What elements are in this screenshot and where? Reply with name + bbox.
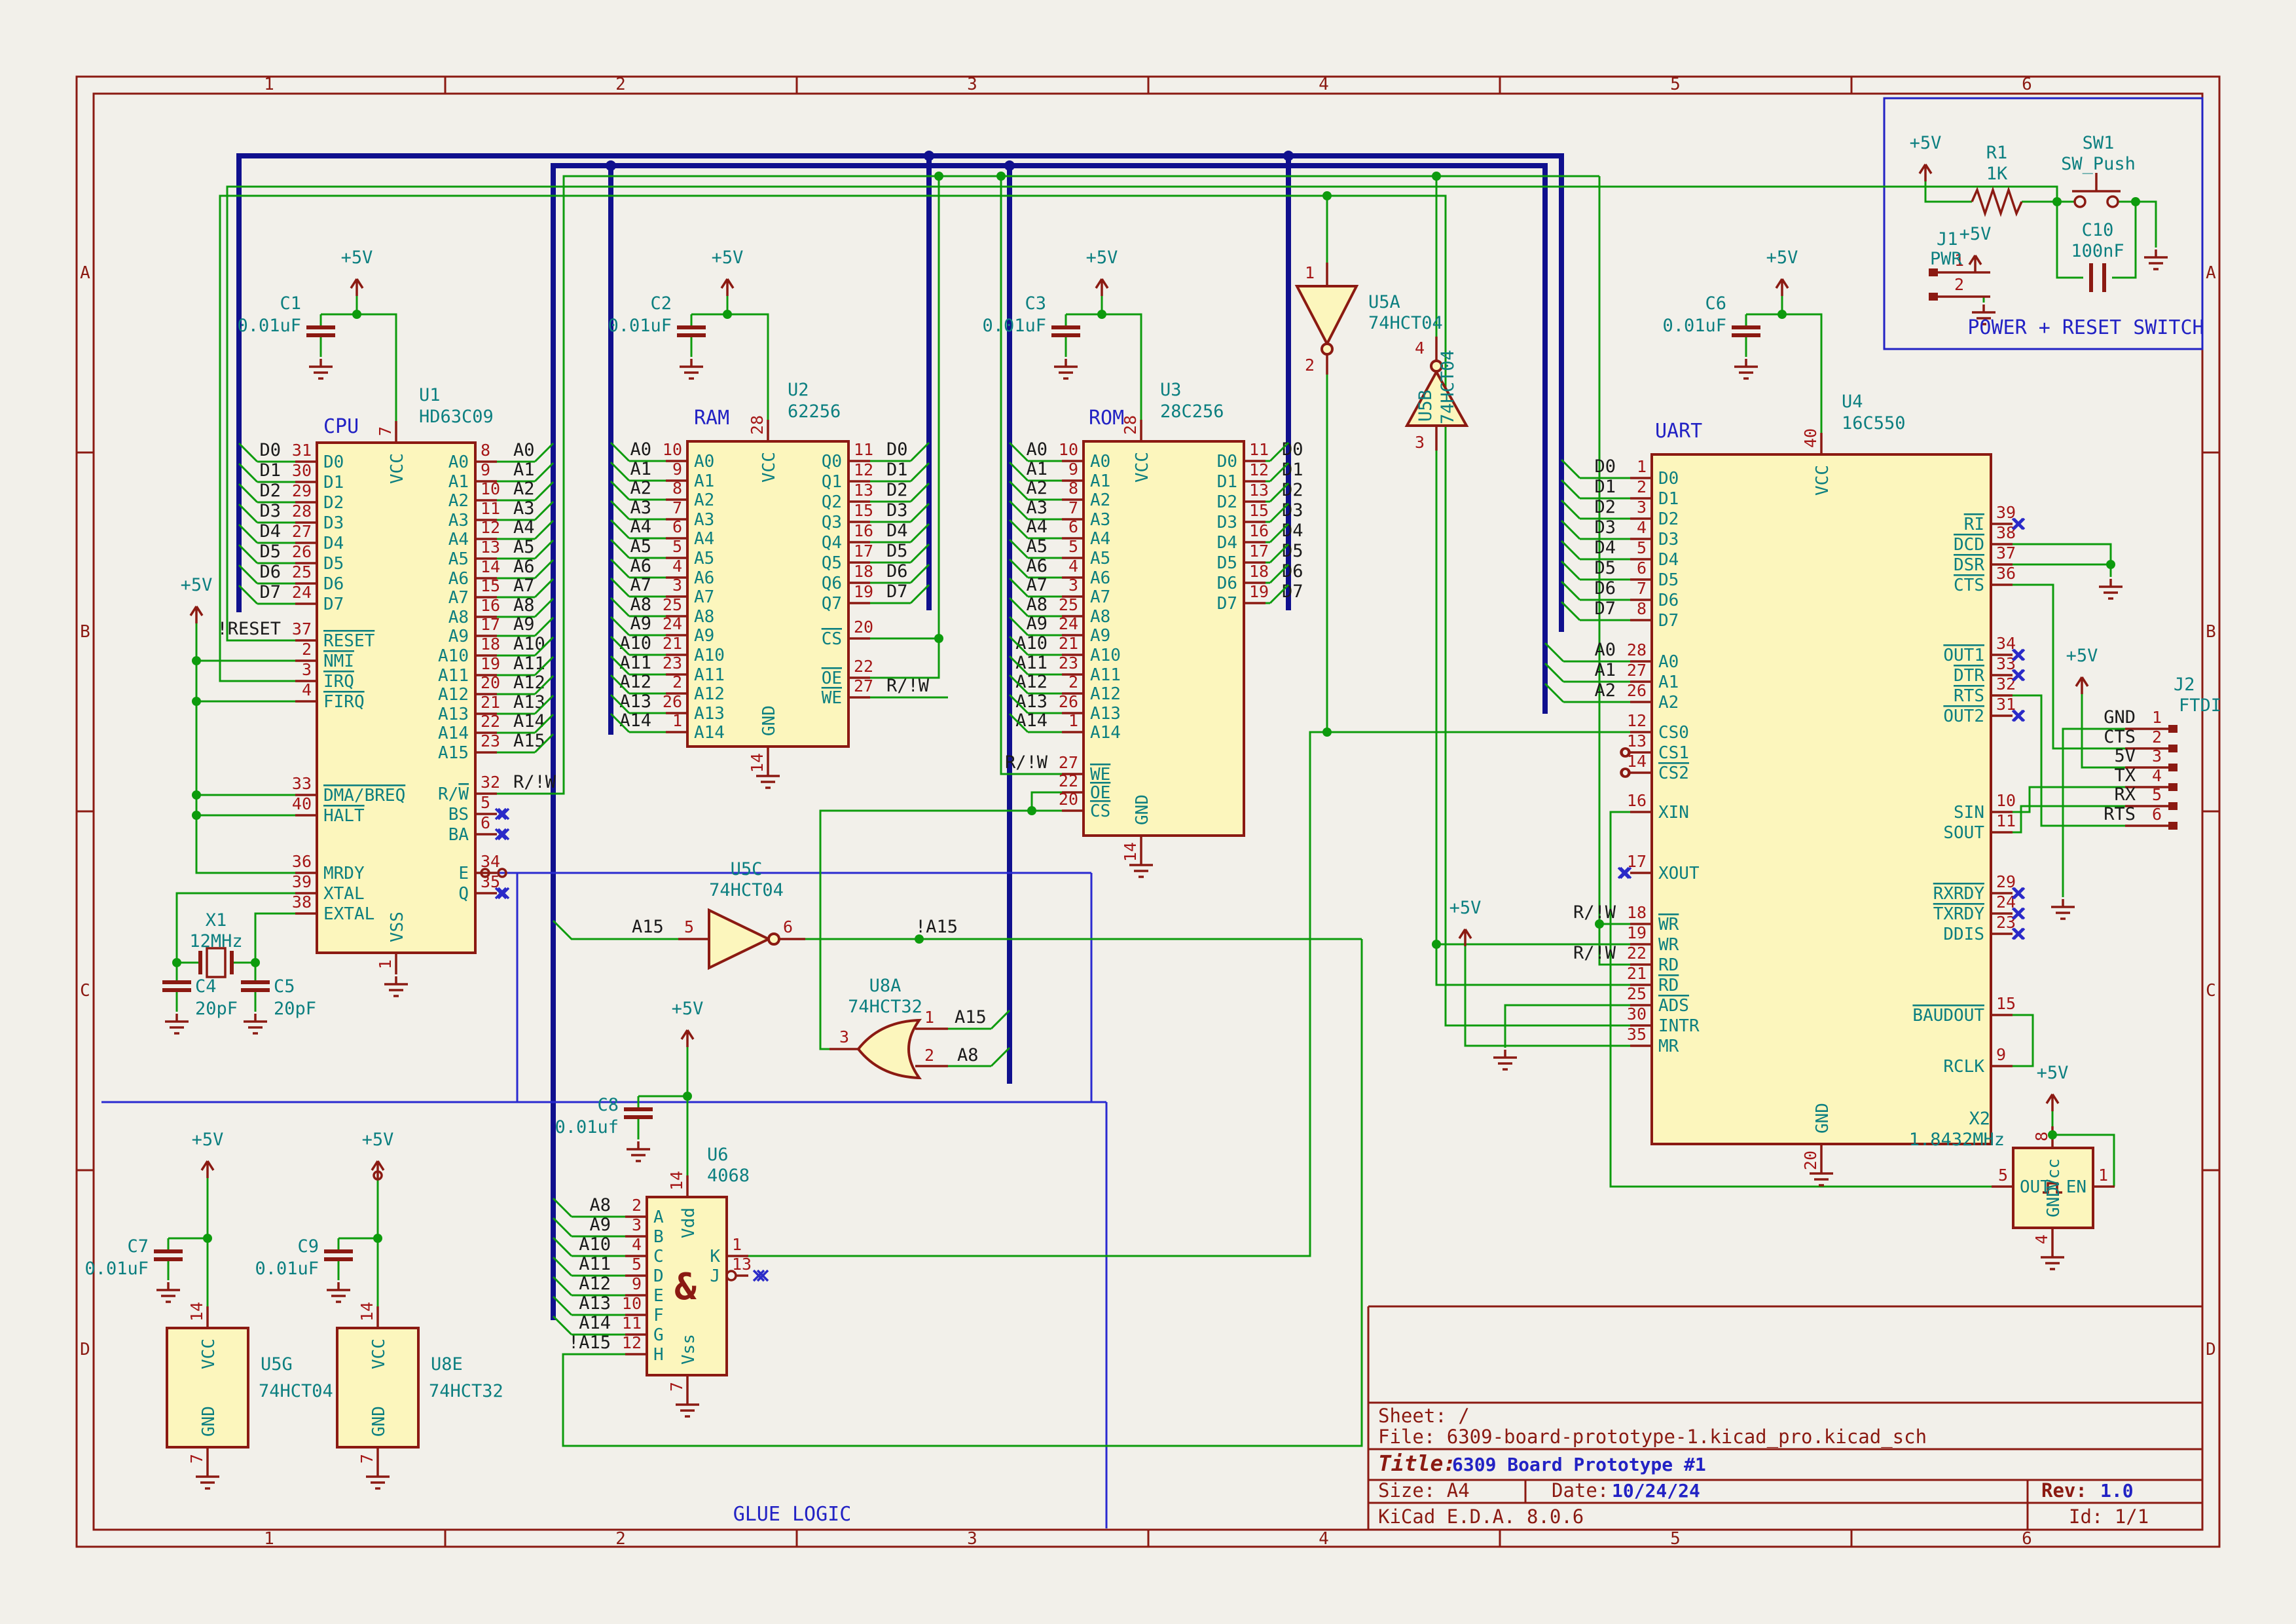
junction-dot [373,1234,382,1243]
text-ics.1.L.9.0: 24 [663,614,682,633]
text-label: D5 [1217,553,1237,573]
text-parts.caps.3.ref: C6 [1705,293,1726,314]
text-label: A3 [694,510,714,530]
date-value: 10/24/24 [1612,1480,1700,1502]
text-power_net: +5V [1449,898,1482,918]
text-label: A8 [694,607,714,627]
text-label: A15 [438,743,469,763]
text-ics.3.B.1: GND [1813,1103,1832,1134]
text-ics.0.R.8.4: A8 [513,595,535,616]
text-ics.3.L.14.0: 16 [1627,791,1647,810]
text-ics.2.L.10.0: 21 [1059,634,1078,653]
text-ics.1.R.10.0: 27 [854,676,873,695]
text-parts.c10.ref: C10 [2082,220,2114,240]
text-ics.0.R.5.4: A5 [513,537,535,557]
frame-row-label: A [2206,263,2216,283]
text-ics.0.R.2.4: A2 [513,479,535,499]
text-ics.4.ref: U6 [707,1145,729,1165]
text-gates.u5a.n1: 1 [1305,263,1315,282]
text-ics.9.0.R.0: 17 [481,615,500,634]
text-ics.2.val: 28C256 [1160,401,1224,422]
text-ics.14.0.L.0: 36 [292,852,312,871]
text-ics.1.R.7.4: D7 [886,581,908,602]
text-ics.0.R.16.4: R/!W [513,772,556,792]
text-ics.1.R.9.0: 22 [854,657,873,676]
text-gates.u5a.ref: U5A [1368,292,1400,312]
text-parts.j2.pins.3.1: TX [2114,766,2136,786]
bus-entry-diag [535,482,553,500]
text-sections.1.t: GLUE LOGIC [733,1503,852,1526]
switch-contact [2075,196,2085,207]
text-ics.4.L.5.0: 10 [622,1294,642,1313]
text-ics.2.R.7.4: D7 [1282,581,1303,602]
text-label: XTAL [323,884,365,904]
kicad-schematic-sheet: 112233445566AABBCCDD Sheet: / File: 6309… [0,0,2296,1624]
text-ics.2.L.7.0: 3 [1068,576,1078,595]
text-ics.4.L.7.4: !A15 [568,1333,611,1353]
text-ics.19.0.R.0: 34 [481,852,500,871]
text-ics.0.ref: U1 [419,385,441,405]
text-ics.0.L.4.4: D4 [259,521,281,542]
frame-col-label: 2 [615,75,626,94]
text-ics.1.T.1: VCC [759,452,779,483]
text-label: A6 [448,569,469,589]
text-label: D [653,1266,664,1286]
text-ics.3.R.1.0: 38 [1996,523,2016,542]
text-ics.2.R.3.0: 15 [1249,501,1269,520]
text-ics.3.L.10.0: 26 [1627,681,1647,700]
text-label: E [653,1286,664,1306]
text-ics.2.L.15.0: 27 [1059,753,1078,772]
sheet-label: Sheet: / [1378,1405,1470,1427]
text-ics.0.B.1: VSS [388,912,407,942]
bus-entry-diag [1010,481,1028,500]
text-ics.3.L.6.0: 7 [1637,579,1647,598]
text-label: A12 [694,684,725,704]
text-parts.caps.1.val: 0.01uF [608,316,672,336]
text-ics.3.L.7.4: D7 [1594,599,1616,619]
wire [1782,296,1821,435]
text-ics.0.T.1: VCC [388,453,407,484]
text-ics.4.T.0: 14 [667,1171,686,1190]
power-flag-arrow [682,1030,693,1047]
text-ics.2.R.4.0: 16 [1249,521,1269,540]
text-label: A [653,1208,664,1227]
bus-entry-diag [611,578,629,597]
text-ics.4.L.2.0: 4 [632,1235,642,1254]
text-parts.caps.2.val: 0.01uF [982,316,1046,336]
bus-entry-diag [239,484,257,502]
text-ics.3.L.4.0: 5 [1637,538,1647,557]
text-ics.1.L.5.0: 5 [672,537,682,556]
junction-dot [1777,310,1787,319]
text-ics.1.0.L.0: 30 [292,461,312,480]
text-label: A7 [1090,587,1110,607]
text-ics.5.T.0: 14 [187,1302,206,1321]
frame-col-label: 1 [264,1529,274,1549]
text-label: D6 [323,574,344,594]
text-parts.j2.pins.1.1: CTS [2104,727,2136,747]
text-ics.2.R.6.4: D6 [1282,561,1303,581]
frame-row-label: C [2206,981,2216,1001]
frame-col-label: 4 [1319,1529,1329,1549]
text-parts.j2.pins.3.0: 4 [2152,766,2162,785]
text-ics.2.T.0: 28 [1121,415,1140,435]
junction-dot [1432,172,1441,181]
text-ics.3.L.22.0: 35 [1627,1025,1647,1044]
text-parts.j1.pins.1: 2 [1954,275,1964,294]
text-ics.7.0.L.0: 24 [292,583,312,602]
text-ics.1.L.11.0: 23 [663,654,682,673]
text-power_net: +5V [2066,646,2098,666]
bus-entry-diag [1561,480,1580,498]
text-parts.caps.1.ref: C2 [650,293,672,314]
power-flag-arrow [1096,279,1108,296]
text-parts.j2.pins.2.0: 3 [2152,747,2162,766]
bus-entry-diag [911,564,929,583]
wire [177,893,295,963]
text-ics.2.L.1.0: 9 [1068,460,1078,479]
text-label: D5 [1658,570,1679,590]
junction-dot [172,958,181,967]
power-flag-arrow [721,279,733,296]
text-ics.2.L.12.0: 2 [1068,673,1078,692]
text-ics.3.R.9.0: 11 [1996,811,2016,830]
text-ics.2.R.5.4: D5 [1282,541,1303,561]
gate-u5c-bubble [769,934,779,944]
bus-entry-diag [1010,520,1028,538]
text-label: A10 [438,646,469,666]
text-label: SOUT [1943,823,1984,843]
text-ics.2.L.2.0: 8 [1068,479,1078,498]
text-gates.u5b.ref: U5B [1415,390,1436,422]
text-label: A11 [438,666,469,686]
text-ics.3.L.9.0: 27 [1627,661,1647,680]
text-ics.11.0.R.0: 19 [481,654,500,673]
text-ics.14.0.R.0: 22 [481,712,500,731]
text-ics.3.L.6.4: D6 [1594,578,1616,599]
text-ics.4.L.1.0: 3 [632,1215,642,1234]
bus-entry-diag [1545,643,1563,661]
text-ics.13.0.R.0: 21 [481,693,500,712]
frame-col-label: 3 [967,75,977,94]
power-flag-arrow [191,606,202,623]
bus-entry-diag [535,618,553,636]
text-label: WE [822,688,842,708]
text-label: MR [1658,1037,1679,1056]
text-parts.caps.4.ref: C4 [195,976,217,997]
text-ics.2.R.2.0: 13 [1249,481,1269,500]
text-ics.4.R.1.0: 13 [732,1255,752,1274]
text-ics.2.L.5.4: A5 [1026,536,1048,557]
text-ics.0.L.8.4: !RESET [217,619,281,639]
text-parts.j1.ref: J1 [1937,229,1958,249]
text-label: D3 [1217,513,1237,532]
wire [2013,544,2111,577]
text-label: WR [1658,935,1679,955]
text-ics.1.R.0.0: 11 [854,440,873,459]
text-ics.8.0.R.0: 16 [481,596,500,615]
text-ics.4.L.0.0: 2 [632,1196,642,1215]
bus-entry-diag [1561,541,1580,559]
bus-entry-diag [1010,617,1028,635]
frame-row-label: A [80,263,90,283]
gnd-symbol [627,1141,650,1161]
text-ics.2.L.2.4: A2 [1026,478,1048,498]
text-ics.3.R.2.0: 37 [1996,544,2016,563]
text-ics.1.R.1.0: 12 [854,460,873,479]
text-label: XIN [1658,803,1689,822]
text-ics.1.ref: U2 [788,380,809,400]
text-ics.0.R.6.4: A6 [513,557,535,577]
bus-entry-diag [1010,578,1028,597]
text-gates.u5c.val: 74HCT04 [709,880,784,900]
text-label: D0 [1658,469,1679,489]
bus-entry-diag [611,598,629,616]
text-ics.2.L.3.0: 7 [1068,498,1078,517]
text-parts.x1.ref: X1 [206,910,227,931]
text-parts.r1.val: 1K [1986,164,2008,184]
text-ics.3.val: 16C550 [1842,413,1906,434]
junction-dot [1322,728,1332,737]
text-parts.caps.6.ref: C7 [127,1236,149,1257]
gnd-symbol [2051,899,2075,919]
gnd-symbol [1493,1050,1517,1069]
text-ics.4.B.1: Vss [679,1334,699,1365]
text-label: D7 [1658,611,1679,631]
text-label: D1 [1217,472,1237,492]
text-ics.1.R.5.4: D5 [886,541,908,561]
text-label: A5 [694,549,714,568]
text-ics.3.L.16.0: 18 [1627,903,1647,922]
text-ics.1.L.0.0: 10 [663,440,682,459]
bus-entry-diag [553,1218,572,1236]
text-ics.3.0.R.0: 11 [481,499,500,518]
text-ics.5.B.1: GND [199,1406,219,1437]
text-ics.2.0.R.0: 10 [481,479,500,498]
text-label: CS [822,629,842,649]
bus-entry-diag [553,1316,572,1335]
no-connect-icon [1620,868,1631,878]
text-ics.2.L.7.4: A7 [1026,575,1048,595]
j2-pin-pad [2168,783,2178,791]
bus-entry-diag [911,504,929,522]
text-power_net: +5V [341,248,373,268]
text-ics.3.L.19.0: 21 [1627,964,1647,983]
text-ics.4.R.0.0: 1 [732,1235,742,1254]
text-ics.1.L.8.4: A8 [630,595,651,615]
text-label: A3 [448,511,469,530]
junction-dot [2048,1130,2057,1139]
text-ics.7.B.0: 4 [2032,1234,2051,1244]
text-ics.3.L.4.4: D4 [1594,538,1616,558]
title-block: Sheet: / File: 6309-board-prototype-1.ki… [1368,1306,2202,1530]
text-gates.u5b.n3: 3 [1415,433,1425,452]
text-parts.caps.3.val: 0.01uF [1662,316,1726,336]
power-flag-arrow [2076,677,2088,694]
text-ics.1.L.1.4: A1 [630,459,651,479]
switch-contact [2107,196,2118,207]
text-parts.j2.val: FTDI [2179,695,2221,716]
text-parts.j2.pins.2.1: 5V [2114,746,2136,766]
bus-entry-diag [611,540,629,558]
text-ics.3.R.6.0: 32 [1996,674,2016,693]
gnd-symbol [165,1014,189,1033]
ic-u4-body [1652,454,1991,1144]
gnd-symbol [2099,579,2123,599]
text-ics.18.0.R.0: 6 [481,813,490,832]
text-ics.3.0.L.0: 28 [292,502,312,521]
bus-entry-diag [535,579,553,597]
text-ics.3.L.18.4: R/!W [1573,943,1616,963]
j1-pin-pad [1929,268,1938,276]
text-ics.3.R.8.0: 10 [1996,791,2016,810]
text-ics.3.L.7.0: 8 [1637,599,1647,618]
bus-entry-diag [239,504,257,523]
bus-entry-diag [535,521,553,539]
bus-junction-dot [924,151,934,161]
text-parts.caps.6.val: 0.01uF [84,1259,149,1279]
text-ics.6.B.1: GND [369,1406,389,1437]
text-label: D2 [323,493,344,513]
text-ics.2.L.11.0: 23 [1059,654,1078,673]
text-label: SIN [1954,803,1984,822]
text-parts.c10.val: 100nF [2071,241,2124,261]
junction-dot [192,656,201,665]
text-ics.1.R.3.4: D3 [886,500,908,521]
text-gates.u5b.n4: 4 [1415,339,1425,358]
junction-dot [251,958,260,967]
schematic-content: U1HD63C09CPU7VCC1VSS31D0D030D1D129D2D228… [84,133,2221,1528]
text-label: IRQ [323,672,354,692]
text-label: EN [2066,1177,2086,1197]
text-ics.1.L.7.0: 3 [672,576,682,595]
text-label: RXRDY [1933,884,1985,904]
size-label: Size: A4 [1378,1479,1470,1502]
frame-row-label: D [2206,1340,2216,1359]
text-power_net: +5V [1766,248,1798,268]
text-ics.3.L.2.4: D2 [1594,497,1616,517]
text-ics.1.L.9.4: A9 [630,614,651,634]
junction-dot [192,790,201,800]
text-ics.5.val: 74HCT04 [259,1381,333,1401]
text-ics.2.L.8.4: A8 [1026,595,1048,615]
text-ics.1.L.2.4: A2 [630,478,651,498]
bus-entry-diag [239,443,257,462]
text-ics.2.R.0.0: 11 [1249,440,1269,459]
text-parts.caps.5.ref: C5 [274,976,295,997]
junction-dot [2052,197,2062,206]
text-parts.j2.pins.4.0: 5 [2152,785,2162,804]
text-label: B [653,1227,664,1247]
text-ics.6.val: 74HCT32 [429,1381,503,1401]
bus-entry-diag [535,463,553,481]
app-version: KiCad E.D.A. 8.0.6 [1378,1505,1584,1528]
junction-dot [1595,919,1604,929]
text-ics.1.L.10.0: 21 [663,634,682,653]
bus-entry-diag [911,524,929,542]
text-ics.2.L.9.4: A9 [1026,614,1048,634]
text-ics.1.B.0: 14 [748,753,767,773]
bus-junction-dot [1004,160,1015,171]
bus-entry-diag [1010,598,1028,616]
text-parts.caps.7.ref: C9 [297,1236,319,1257]
wire [357,296,396,423]
text-ics.6.B.0: 7 [357,1454,376,1464]
text-ics.4.L.6.4: A14 [579,1313,611,1333]
text-ics.5.0.L.0: 26 [292,542,312,561]
text-ics.2.R.5.0: 17 [1249,542,1269,561]
gate-u5a-bubble [1322,344,1332,354]
junction-dot [1432,940,1441,949]
bus-entry-diag [611,520,629,538]
text-ics.1.L.3.0: 7 [672,498,682,517]
text-ics.4.L.4.4: A12 [579,1274,611,1294]
text-ics.2.L.5.0: 5 [1068,537,1078,556]
text-free_labels.0.t: !A15 [915,917,958,937]
text-label: A1 [1658,673,1679,692]
power-flag-arrow [2047,1094,2058,1111]
text-ics.2.L.17.0: 20 [1059,790,1078,809]
text-ics.0.L.0.4: D0 [259,440,281,460]
text-parts.j2.pins.4.1: RX [2114,784,2136,805]
bus-entry-diag [1545,663,1563,682]
text-ics.1.R.6.0: 18 [854,562,873,581]
text-label: HALT [323,806,365,826]
text-label: A7 [448,588,469,608]
text-label: CS0 [1658,723,1689,743]
text-label: BS [448,805,469,824]
text-ics.17.0.R.0: 5 [481,793,490,812]
text-ics.4.L.5.4: A13 [579,1293,611,1314]
text-gates.u5c.n6: 6 [783,917,793,936]
text-ics.3.L.1.4: D1 [1594,477,1616,497]
bus-junction-dot [1283,151,1294,161]
text-ics.0.sec: CPU [323,415,359,438]
file-label: File: 6309-board-prototype-1.kicad_pro.k… [1378,1426,1927,1449]
text-label: Q2 [822,492,842,512]
text-gates.u5c.ref: U5C [731,859,763,879]
text-ics.1.R.7.0: 19 [854,582,873,601]
text-label: DTR [1954,666,1984,686]
text-ics.1.R.2.0: 13 [854,481,873,500]
bus-entry-diag [239,585,257,604]
bus-entry-diag [611,501,629,519]
text-ics.0.R.9.4: A9 [513,614,535,635]
text-label: A1 [694,471,714,491]
wire [991,1048,1010,1066]
text-label: OUT1 [1943,646,1984,665]
text-gates.u5a.val: 74HCT04 [1368,313,1443,333]
junction-dot [1027,806,1036,815]
text-ics.3.L.11.0: 12 [1627,711,1647,730]
bus-entry-diag [553,1277,572,1295]
text-ics.12.0.R.0: 20 [481,673,500,692]
text-ics.0.R.0.4: A0 [513,440,535,460]
gnd-symbol [309,359,333,378]
wire [1032,792,1062,811]
text-ics.7.0.R.0: 15 [481,576,500,595]
text-label: A11 [694,665,725,685]
text-ics.0.val: HD63C09 [419,407,494,427]
wire [2057,202,2083,278]
text-gates.u5c.n5: 5 [684,917,694,936]
text-ics.1.val: 62256 [788,401,841,422]
frame-col-label: 5 [1670,75,1681,94]
text-label: Q4 [822,533,842,553]
text-gates.u8a.l1: A15 [955,1007,987,1027]
text-ics.3.L.5.0: 6 [1637,559,1647,578]
